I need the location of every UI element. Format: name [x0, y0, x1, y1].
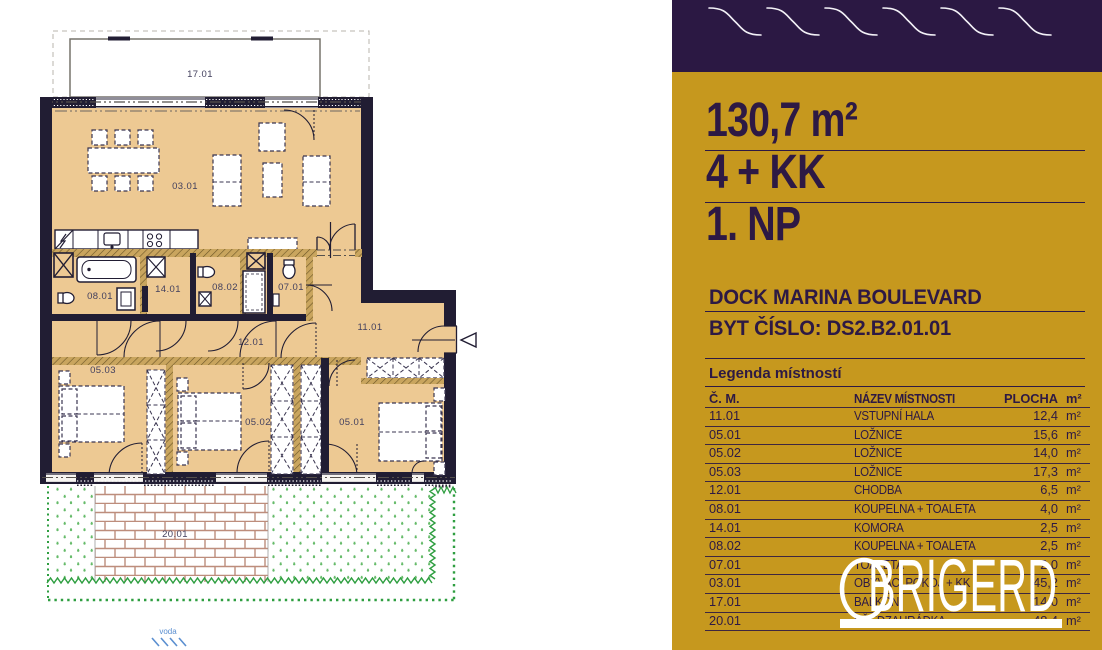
svg-text:07.01: 07.01 [278, 282, 304, 293]
svg-text:08.02: 08.02 [212, 282, 238, 293]
svg-text:20.01: 20.01 [162, 529, 188, 540]
svg-text:08.01: 08.01 [87, 291, 113, 302]
svg-text:17.01: 17.01 [187, 69, 213, 80]
svg-text:voda: voda [159, 627, 177, 636]
svg-text:14.01: 14.01 [155, 284, 181, 295]
svg-text:BRIGERD: BRIGERD [868, 556, 1057, 628]
svg-text:05.02: 05.02 [245, 417, 271, 428]
svg-text:11.01: 11.01 [357, 322, 382, 333]
svg-text:05.03: 05.03 [90, 365, 116, 376]
svg-text:05.01: 05.01 [339, 417, 365, 428]
svg-text:03.01: 03.01 [172, 181, 198, 192]
